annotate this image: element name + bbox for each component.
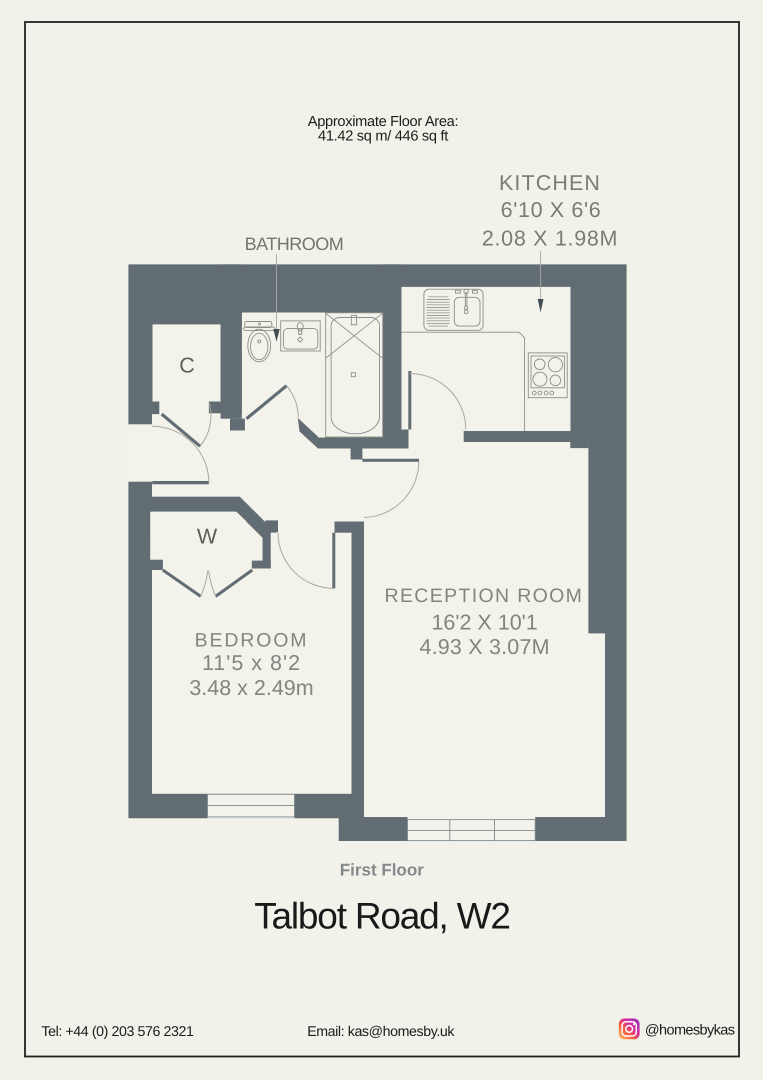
svg-text:2.08 X 1.98M: 2.08 X 1.98M — [482, 227, 618, 251]
svg-text:11'5 x 8'2: 11'5 x 8'2 — [202, 651, 301, 675]
svg-text:41.42 sq m/ 446 sq ft: 41.42 sq m/ 446 sq ft — [318, 129, 448, 145]
svg-text:RECEPTION ROOM: RECEPTION ROOM — [385, 585, 584, 607]
svg-text:@homesbykas: @homesbykas — [645, 1023, 735, 1039]
svg-text:W: W — [197, 525, 218, 549]
svg-text:16'2 X 10'1: 16'2 X 10'1 — [431, 611, 537, 635]
svg-text:KITCHEN: KITCHEN — [499, 171, 601, 195]
svg-text:3.48 x 2.49m: 3.48 x 2.49m — [189, 676, 313, 700]
svg-text:Talbot Road, W2: Talbot Road, W2 — [254, 896, 510, 937]
svg-text:4.93 X 3.07M: 4.93 X 3.07M — [419, 635, 549, 659]
svg-text:BATHROOM: BATHROOM — [245, 234, 344, 254]
svg-text:Tel: +44 (0) 203 576 2321: Tel: +44 (0) 203 576 2321 — [41, 1024, 194, 1040]
svg-text:Email: kas@homesby.uk: Email: kas@homesby.uk — [307, 1024, 455, 1040]
svg-text:6'10 X 6'6: 6'10 X 6'6 — [501, 198, 602, 222]
svg-text:First Floor: First Floor — [340, 861, 424, 880]
svg-text:C: C — [179, 353, 195, 377]
svg-text:BEDROOM: BEDROOM — [195, 630, 309, 652]
